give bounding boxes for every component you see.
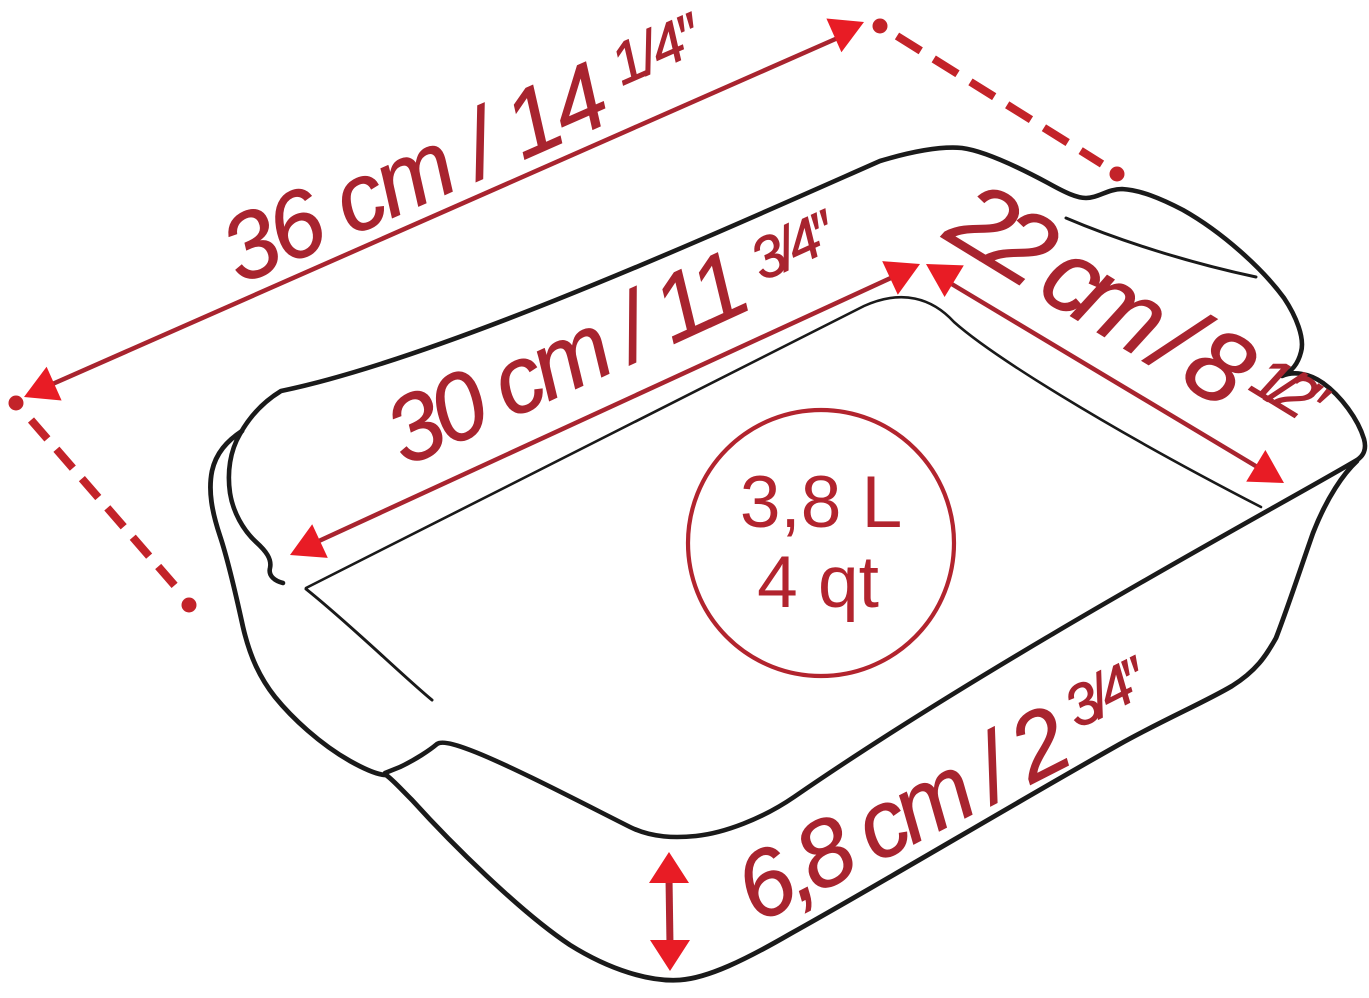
svg-text:4 qt: 4 qt (757, 542, 879, 623)
svg-text:3,8 L: 3,8 L (740, 462, 902, 543)
svg-text:22 cm / 8 1/2″: 22 cm / 8 1/2″ (929, 158, 1343, 472)
svg-text:36 cm / 14 1/4″: 36 cm / 14 1/4″ (206, 0, 728, 303)
svg-text:6,8 cm / 2 3/4″: 6,8 cm / 2 3/4″ (718, 639, 1175, 941)
svg-text:30 cm / 11 3/4″: 30 cm / 11 3/4″ (370, 186, 859, 486)
